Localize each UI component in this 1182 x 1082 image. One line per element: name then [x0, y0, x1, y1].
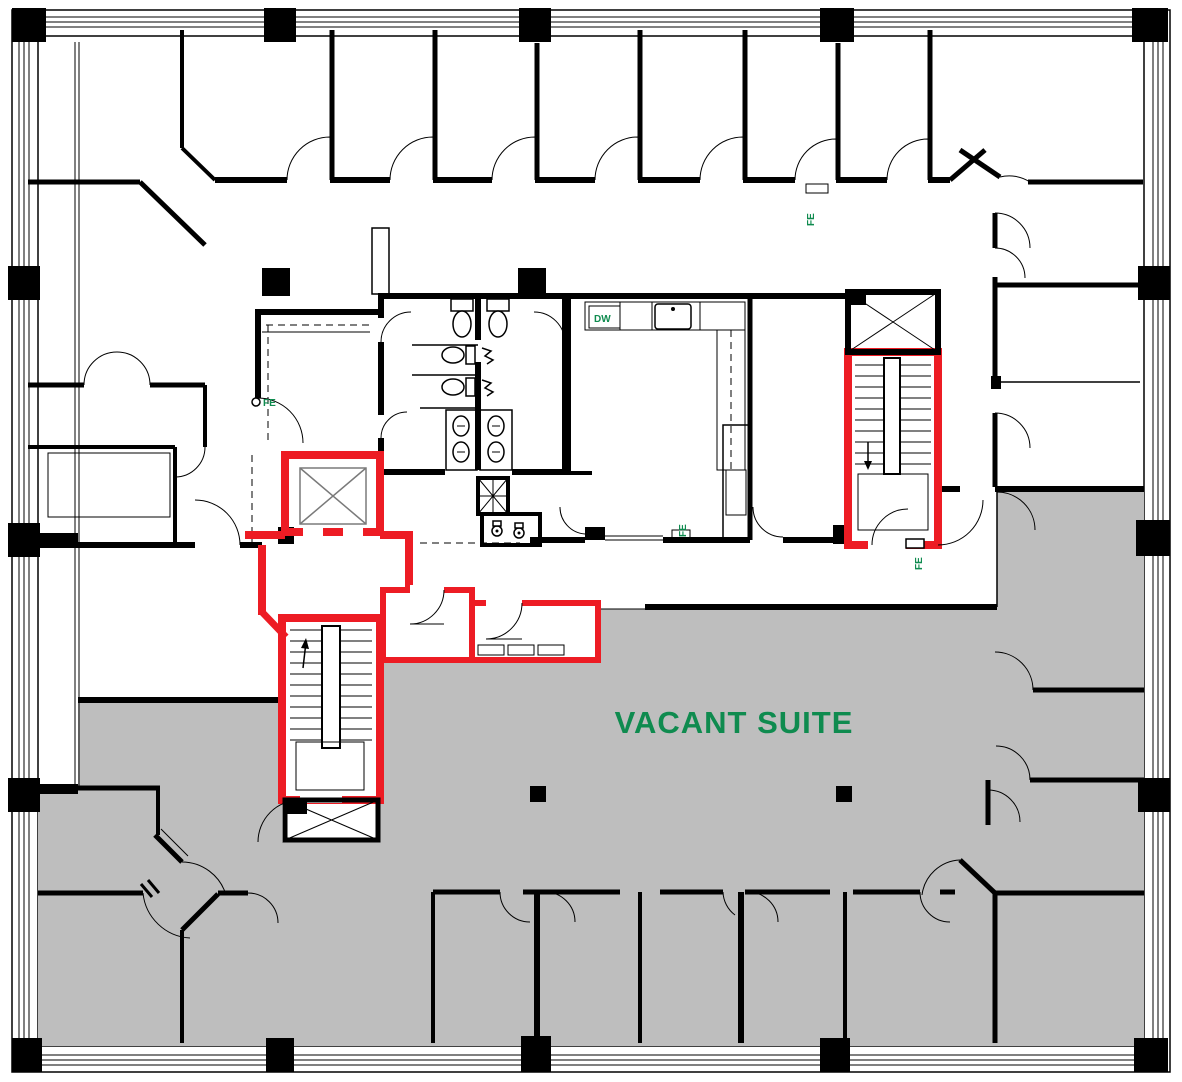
vacant-suite-label: VACANT SUITE	[615, 705, 854, 740]
fe-label-east-stair: FE	[914, 557, 925, 570]
fe-marker-circle	[252, 398, 260, 406]
fe-label-west: FE	[263, 398, 276, 409]
fe-label-corridor: FE	[678, 524, 689, 537]
fe-label-north: FE	[806, 213, 817, 226]
dw-label: DW	[594, 314, 611, 325]
floor-plan: VACANT SUITE FE FE FE FE DW	[0, 0, 1182, 1082]
floor-plan-drawing: VACANT SUITE FE FE FE FE DW	[0, 0, 1182, 1082]
